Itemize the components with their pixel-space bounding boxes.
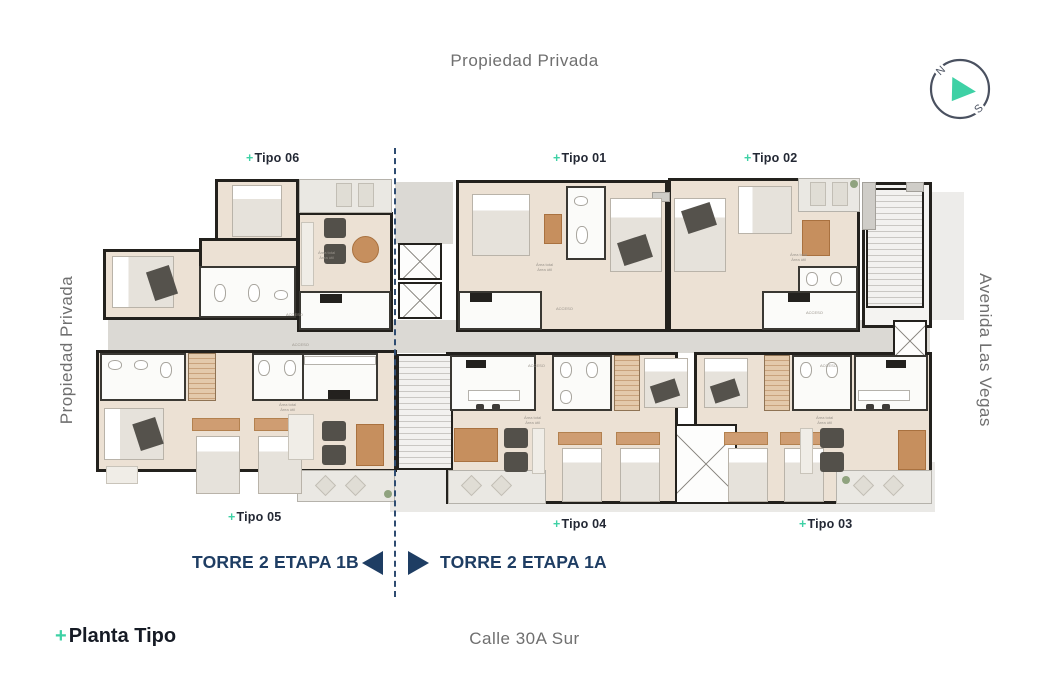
kitchen [450,355,536,411]
unit-name: Tipo 06 [255,151,300,165]
unit-name: Tipo 05 [237,510,282,524]
unit-label-tipo-04: +Tipo 04 [553,517,606,531]
kitchen-island [468,390,520,401]
street-label-left: Propiedad Privada [57,276,77,424]
plus-icon: + [228,510,236,524]
unit-label-tipo-03: +Tipo 03 [799,517,852,531]
acceso-annotation: ACCESO [528,363,545,368]
armchair [820,428,844,448]
loveseat [192,418,240,431]
closet [764,355,790,411]
loveseat [616,432,660,445]
dining-table [898,430,926,470]
unit-name: Tipo 03 [808,517,853,531]
area-util-text: Área útil [318,255,335,260]
elevator-shaft [398,282,442,319]
armchair [820,452,844,472]
acceso-annotation: ACCESO [820,363,837,368]
area-annotation: Área total Área útil [790,252,807,262]
toilet [560,362,572,378]
lounge-chair [810,182,826,206]
toilet [248,284,260,302]
armchair [504,452,528,472]
arrow-right-icon [408,551,429,575]
cooktop [470,293,492,302]
cooktop [466,360,486,368]
armchair [322,421,346,441]
sink [274,290,288,300]
plant [384,490,392,498]
unit-label-tipo-06: +Tipo 06 [246,151,299,165]
unit-name: Tipo 01 [562,151,607,165]
terrace-slab [930,192,964,320]
compass-north-label: N [934,64,948,78]
armchair [324,218,346,238]
dining-table [544,214,562,244]
concrete-column [862,182,876,230]
bed [562,448,602,502]
plus-icon: + [246,151,254,165]
acceso-annotation: ACCESO [806,310,823,315]
stool [866,404,874,410]
kitchen-island [858,390,910,401]
toilet [800,362,812,378]
unit-label-tipo-02: +Tipo 02 [744,151,797,165]
dining-table [454,428,498,462]
acceso-annotation: ACCESO [556,306,573,311]
torre-label-1b: TORRE 2 ETAPA 1B [192,552,352,573]
stool [492,404,500,410]
bed [472,194,530,256]
concrete-column [906,182,924,192]
dining-table [356,424,384,466]
area-annotation: Área total Área útil [524,415,541,425]
bed [232,185,282,237]
compass-icon: N S [928,57,992,121]
cooktop [320,294,342,303]
cooktop [328,390,350,399]
sofa [288,414,314,460]
loveseat [724,432,768,445]
toilet [214,284,226,302]
floor-plan-page: Propiedad Privada Propiedad Privada Aven… [0,0,1049,700]
bed [728,448,768,502]
area-annotation: Área total Área útil [816,415,833,425]
closet [614,355,640,411]
dining-table [802,220,830,256]
sink [560,390,572,404]
torre-label-1a: TORRE 2 ETAPA 1A [440,552,607,573]
plan-title: +Planta Tipo [55,625,176,648]
stool [882,404,890,410]
unit-name: Tipo 02 [753,151,798,165]
plan-title-text: Planta Tipo [69,625,176,647]
closet [188,353,216,401]
etapa-divider-line [394,148,396,597]
armchair [504,428,528,448]
plant [850,180,858,188]
sink [108,360,122,370]
area-util-text: Área útil [524,420,541,425]
unit-label-tipo-05: +Tipo 05 [228,510,281,524]
toilet [284,360,296,376]
stool [476,404,484,410]
area-annotation: Área total Área útil [318,250,335,260]
area-util-text: Área útil [790,257,807,262]
sink [134,360,148,370]
bed [738,186,792,234]
kitchen-counter [304,356,376,365]
plus-icon: + [55,625,67,647]
toilet [576,226,588,244]
area-annotation: Área total Área útil [279,402,296,412]
plus-icon: + [799,517,807,531]
sofa [532,428,545,474]
sofa [301,222,314,286]
street-label-top: Propiedad Privada [0,51,1049,71]
unit-label-tipo-01: +Tipo 01 [553,151,606,165]
lounge-chair [358,183,374,207]
plus-icon: + [553,151,561,165]
sofa [106,466,138,484]
area-util-text: Área útil [279,407,296,412]
plus-icon: + [553,517,561,531]
armchair [322,445,346,465]
lobby-vestibule [395,182,453,244]
dining-table [352,236,379,263]
acceso-annotation: ACCESO [292,342,309,347]
toilet [160,362,172,378]
sink [574,196,588,206]
lounge-chair [832,182,848,206]
sink [830,272,842,286]
acceso-annotation: ACCESO [286,312,303,317]
compass-arrow-icon [950,77,977,103]
lounge-chair [336,183,352,207]
cooktop [788,293,810,302]
toilet [258,360,270,376]
area-annotation: Área total Área útil [536,262,553,272]
elevator-shaft [398,243,442,280]
toilet [586,362,598,378]
stairs [397,354,453,470]
bed [620,448,660,502]
unit-name: Tipo 04 [562,517,607,531]
area-util-text: Área útil [816,420,833,425]
street-label-right: Avenida Las Vegas [975,273,995,427]
area-util-text: Área útil [536,267,553,272]
bed [196,436,240,494]
arrow-left-icon [362,551,383,575]
cooktop [886,360,906,368]
kitchen [299,291,391,330]
plus-icon: + [744,151,752,165]
plant [842,476,850,484]
sofa [800,428,813,474]
loveseat [558,432,602,445]
toilet [806,272,818,286]
